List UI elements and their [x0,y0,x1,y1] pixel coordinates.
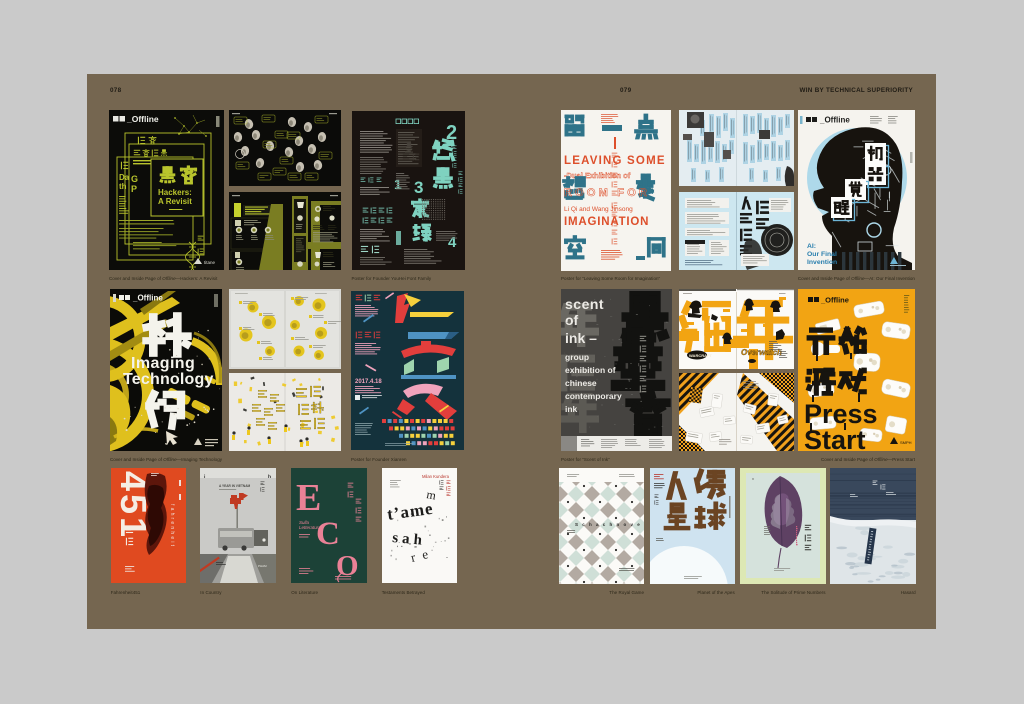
svg-text:A Revisit: A Revisit [158,197,192,206]
svg-text:_Offline: _Offline [820,296,849,305]
svg-text:contemporary: contemporary [565,391,622,401]
svg-text:PHAM: PHAM [258,564,267,568]
svg-text:of: of [565,312,579,328]
svg-text:O: O [336,550,359,582]
svg-text:Technology: Technology [123,371,214,388]
svg-text:S c h a c h n o v e l l e: S c h a c h n o v e l l e [575,522,644,527]
svg-text:ink: ink [565,404,578,414]
svg-text:-Dual Exhibition of: -Dual Exhibition of [564,171,631,180]
svg-text:P: P [131,184,137,194]
svg-text:group: group [565,352,589,362]
svg-text:exhibition of: exhibition of [565,365,616,375]
svg-text:titane: titane [204,260,216,265]
svg-text:h: h [268,474,271,480]
svg-text:G: G [131,174,138,184]
svg-text:C: C [316,516,340,552]
svg-text:x: x [752,476,754,481]
svg-text:th: th [119,182,127,191]
svg-text:SMPH: SMPH [900,440,912,445]
svg-text:_Offline: _Offline [819,116,850,125]
svg-text:3: 3 [414,178,423,197]
svg-text:Letteratura: Letteratura [299,525,321,530]
svg-text:Imaging: Imaging [131,355,195,372]
svg-text:Invention: Invention [807,259,837,266]
svg-text:Our Final: Our Final [807,251,837,258]
svg-text:ROOM FOR: ROOM FOR [564,187,650,199]
svg-text:Hackers:: Hackers: [158,188,192,197]
svg-text:4: 4 [448,234,457,251]
svg-text:_Offline: _Offline [126,114,159,124]
svg-text:E: E [296,477,321,519]
svg-text:IMAGINATION: IMAGINATION [564,216,649,228]
svg-text:Da: Da [119,173,130,182]
svg-text:sah: sah [391,530,426,549]
svg-text:AI:: AI: [807,243,816,250]
svg-text:scent: scent [565,296,604,312]
svg-text:_Offline: _Offline [132,294,163,303]
svg-text:WARCRAFT: WARCRAFT [689,353,712,358]
svg-text:chinese: chinese [565,378,597,388]
svg-text:r e: r e [409,546,431,565]
svg-text:fahrenheit: fahrenheit [169,504,175,548]
svg-text:2017.4.18: 2017.4.18 [355,379,382,385]
svg-text:Start: Start [804,425,866,451]
svg-text:t’ame: t’ame [386,499,435,524]
svg-text:A YEAR IN VIETNAM: A YEAR IN VIETNAM [219,484,251,488]
svg-text:ink –: ink – [565,330,597,346]
svg-text:m: m [425,487,437,503]
svg-text:Li Qi and Wang Jinsong: Li Qi and Wang Jinsong [564,206,633,213]
svg-text:Milan Kundera: Milan Kundera [422,474,450,479]
